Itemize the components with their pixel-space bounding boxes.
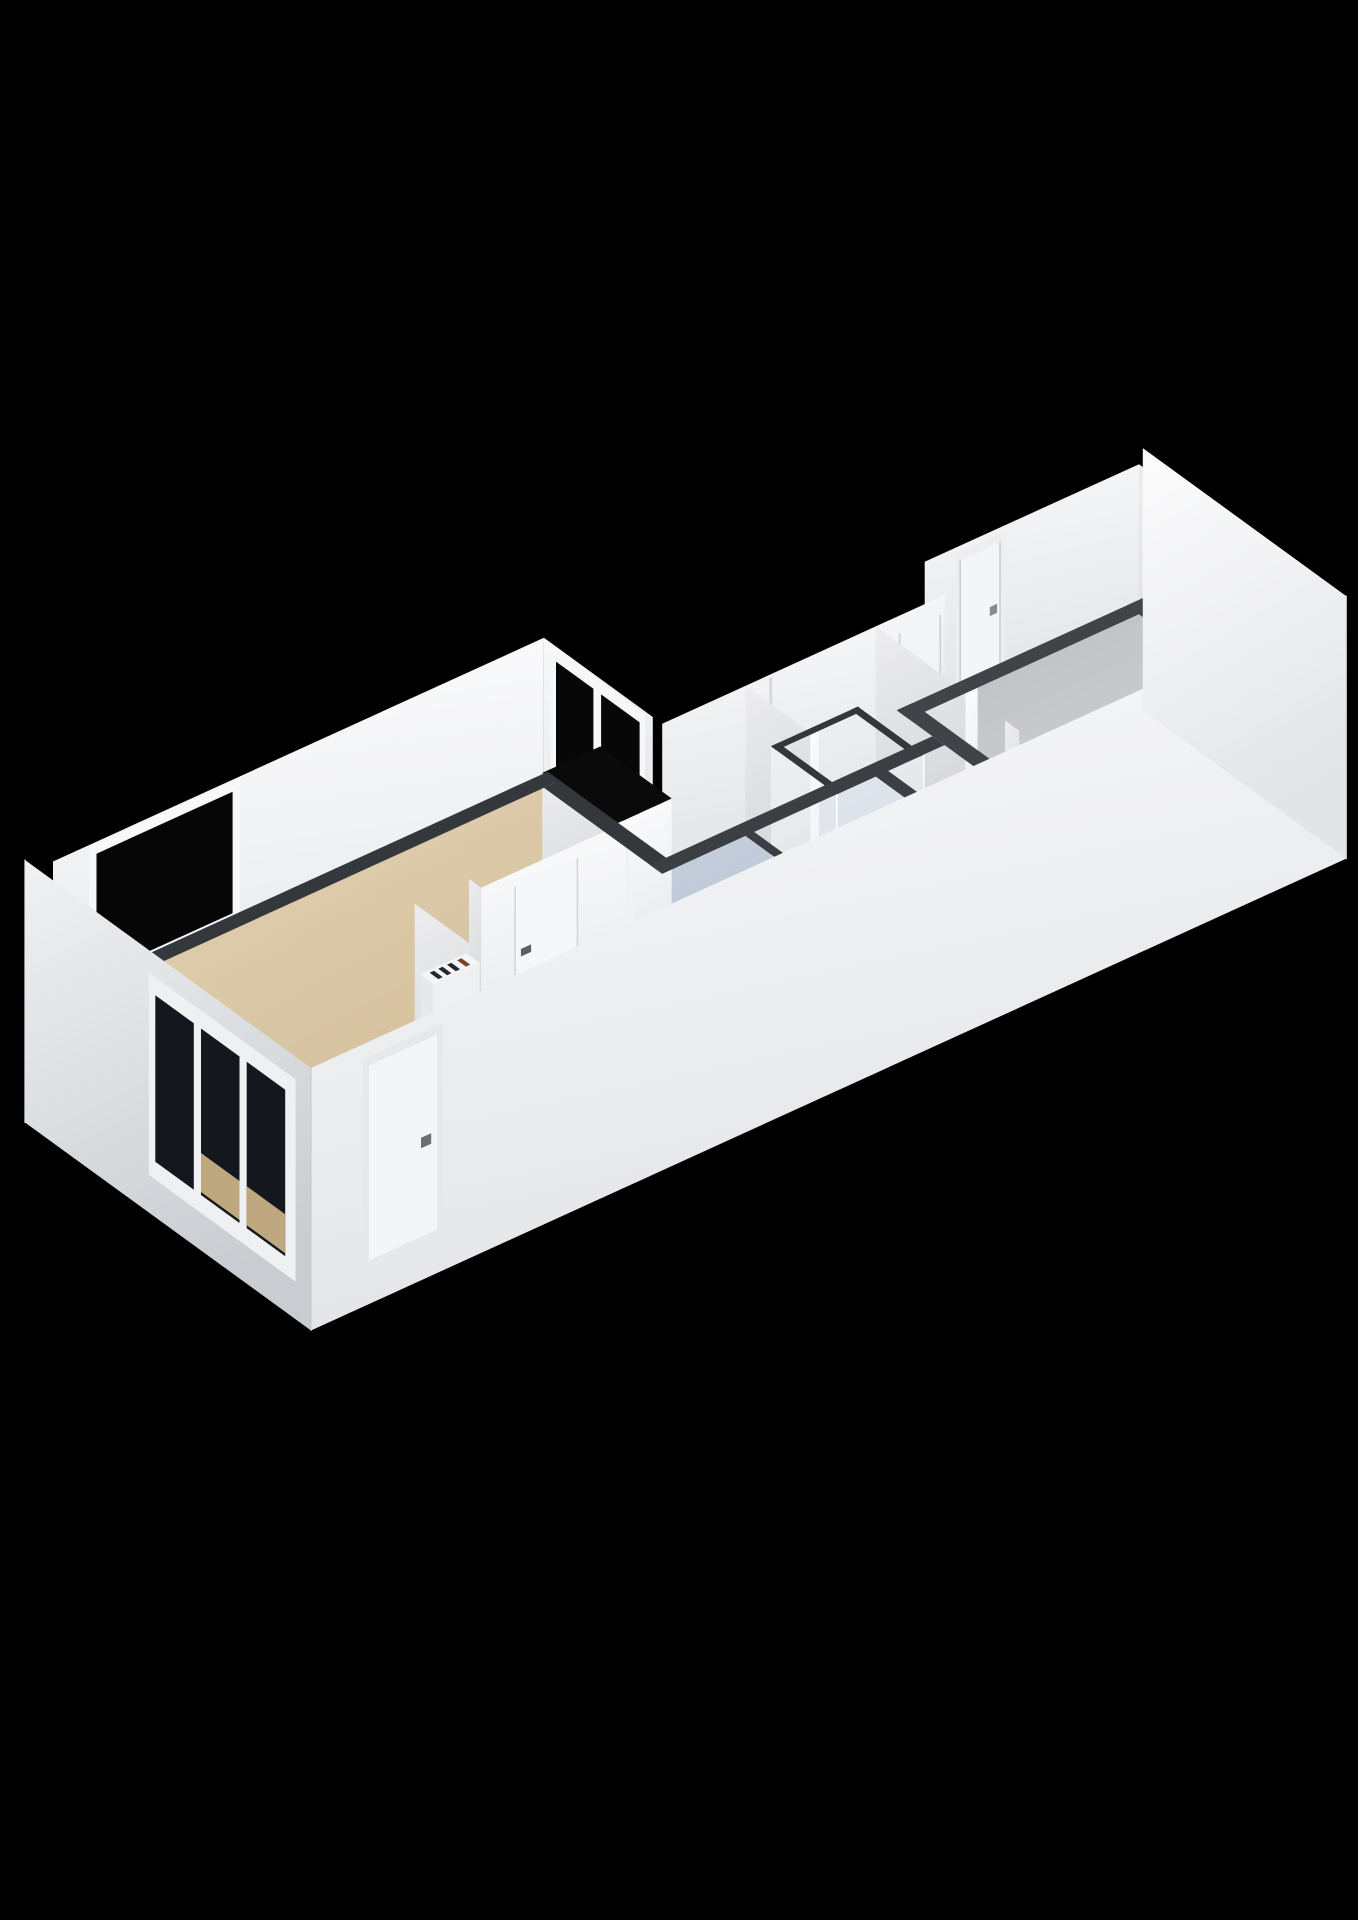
- front-door-leaf: [369, 1035, 437, 1261]
- floorplan-3d-view: [0, 0, 1358, 1920]
- window-band-glass: [155, 995, 194, 1190]
- floorplan-geometry: [25, 448, 1346, 1330]
- floorplan-canvas: [0, 0, 1358, 1920]
